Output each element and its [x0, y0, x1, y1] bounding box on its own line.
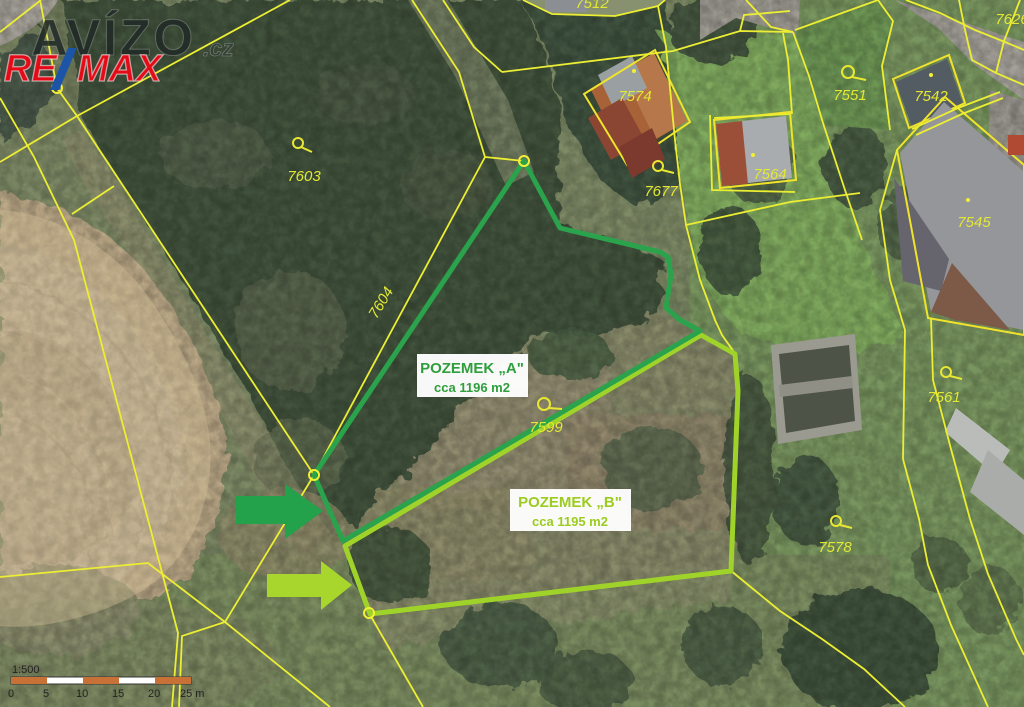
svg-text:5: 5: [43, 688, 49, 700]
svg-text:7603: 7603: [287, 168, 321, 185]
svg-text:7599: 7599: [529, 419, 563, 436]
svg-text:RE: RE: [4, 48, 58, 90]
svg-text:7564: 7564: [753, 166, 786, 183]
svg-text:POZEMEK „B": POZEMEK „B": [518, 494, 622, 511]
svg-text:POZEMEK „A": POZEMEK „A": [420, 360, 524, 377]
svg-text:MAX: MAX: [77, 48, 164, 90]
svg-text:15: 15: [112, 688, 124, 700]
svg-text:1:500: 1:500: [12, 664, 40, 676]
svg-text:7677: 7677: [644, 183, 678, 200]
svg-text:10: 10: [76, 688, 88, 700]
svg-text:7545: 7545: [957, 214, 991, 231]
svg-text:7512: 7512: [575, 0, 609, 12]
svg-text:25 m: 25 m: [180, 688, 204, 700]
svg-text:7574: 7574: [618, 88, 651, 105]
svg-text:20: 20: [148, 688, 160, 700]
svg-text:7551: 7551: [833, 87, 866, 104]
svg-text:cca 1195 m2: cca 1195 m2: [532, 514, 608, 529]
svg-text:7542: 7542: [914, 88, 948, 105]
svg-text:0: 0: [8, 688, 14, 700]
svg-text:7578: 7578: [818, 539, 852, 556]
svg-text:7561: 7561: [927, 389, 960, 406]
svg-text:7626: 7626: [995, 11, 1024, 28]
svg-text:.cz: .cz: [203, 35, 234, 61]
svg-text:cca 1196 m2: cca 1196 m2: [434, 380, 510, 395]
